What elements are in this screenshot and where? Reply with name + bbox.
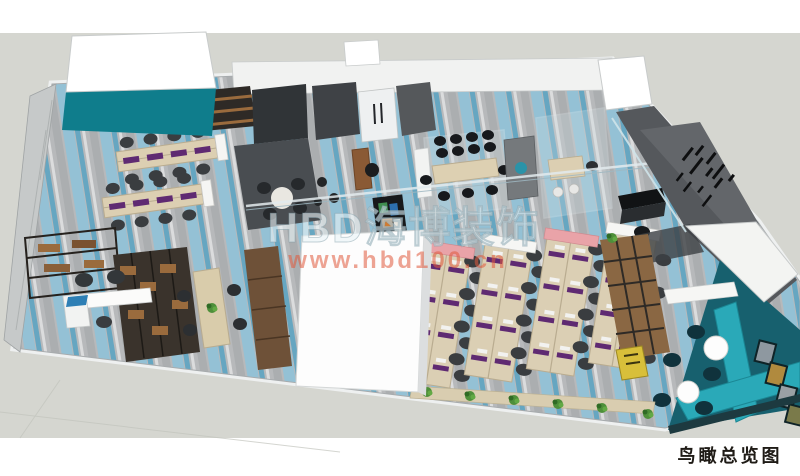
office-3d-render: HBD海博装饰 www.hbd100.cn 鸟瞰总览图 — [0, 0, 800, 476]
logo-wall-panel — [504, 136, 538, 200]
watermark-brand: HBD海博装饰 — [268, 204, 541, 251]
teal-feature-room — [62, 32, 216, 136]
logo-dot — [515, 162, 527, 174]
pantry-cabinets — [252, 82, 436, 144]
double-door — [358, 88, 398, 142]
watermark-url: www.hbd100.cn — [287, 247, 507, 274]
yellow-sign — [616, 346, 648, 380]
glass-office — [536, 108, 612, 218]
watermark: HBD海博装饰 www.hbd100.cn — [268, 204, 541, 274]
caption-title: 鸟瞰总览图 — [678, 445, 783, 466]
floor-lamp — [365, 163, 379, 177]
round-table-1 — [704, 336, 728, 360]
teal-wall-face — [62, 88, 216, 136]
round-table-2 — [677, 381, 699, 403]
white-roof-box — [66, 32, 216, 92]
birdseye-render-page: HBD海博装饰 www.hbd100.cn 鸟瞰总览图 — [0, 0, 800, 476]
